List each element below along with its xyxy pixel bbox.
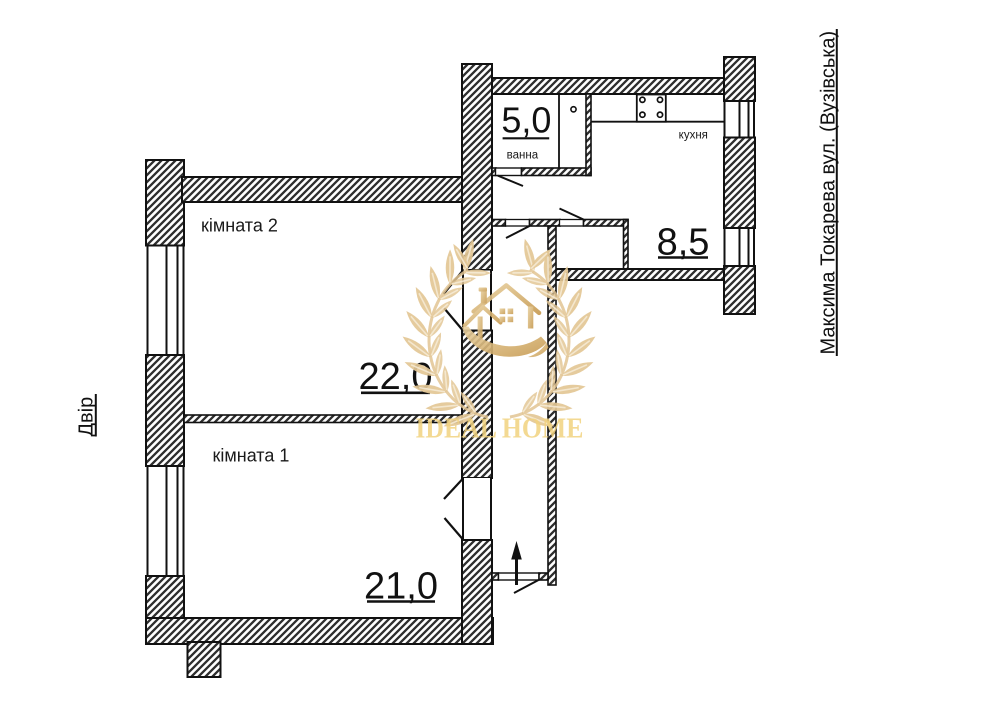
svg-text:кухня: кухня: [679, 130, 708, 142]
svg-text:5,0: 5,0: [501, 99, 551, 140]
svg-text:кімната 1: кімната 1: [213, 446, 290, 466]
svg-text:IDEAL HOME: IDEAL HOME: [415, 414, 583, 445]
svg-text:кімната 2: кімната 2: [201, 216, 278, 236]
svg-text:Двір: Двір: [76, 397, 98, 437]
svg-text:ванна: ванна: [507, 150, 539, 162]
